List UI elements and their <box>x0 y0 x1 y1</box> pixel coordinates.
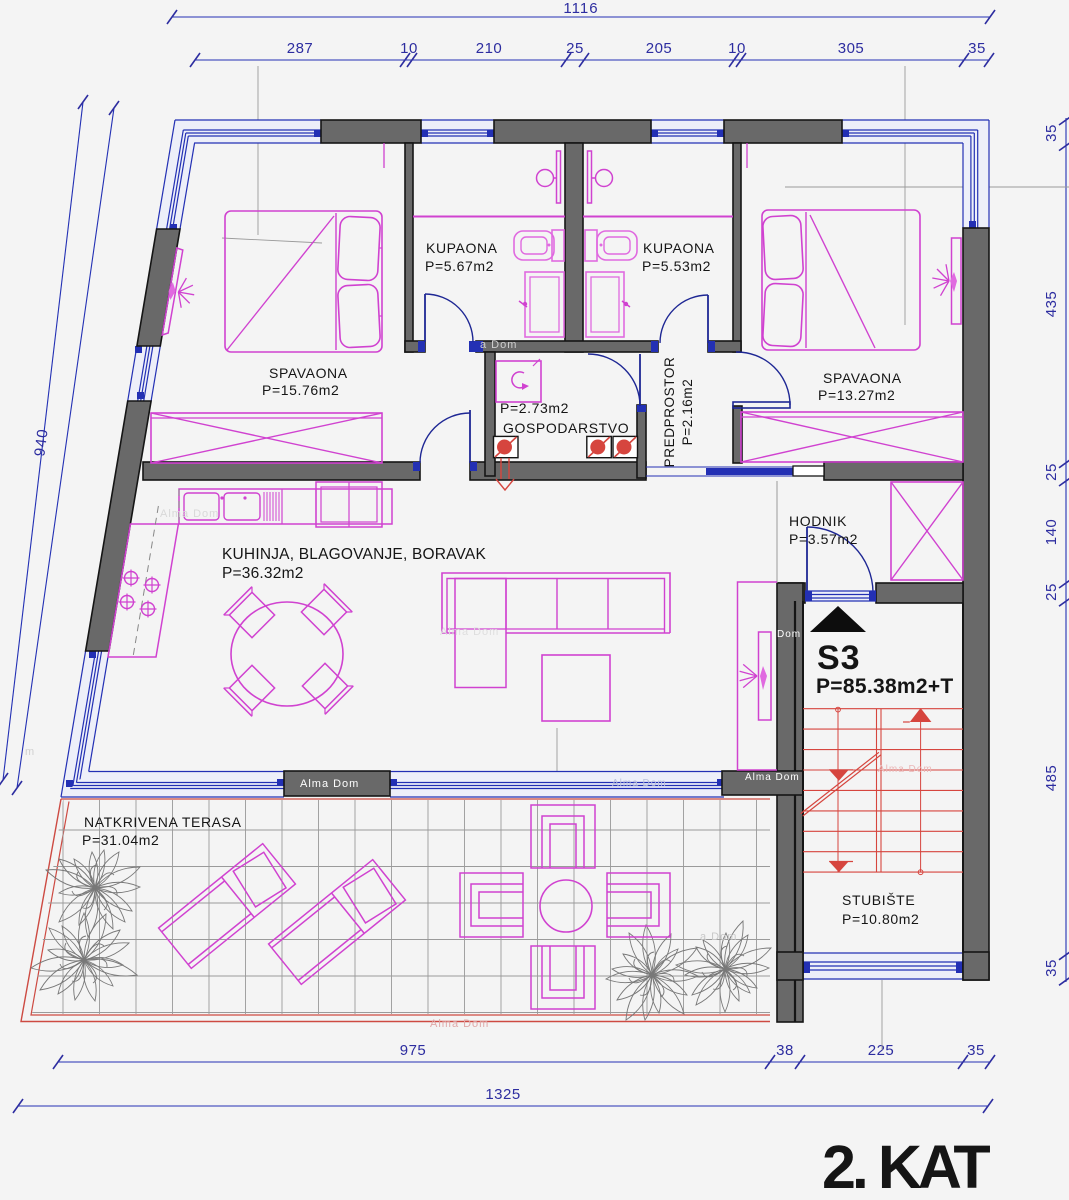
svg-text:KUPAONA: KUPAONA <box>426 240 498 256</box>
svg-text:975: 975 <box>400 1042 427 1059</box>
svg-text:KUHINJA, BLAGOVANJE, BORAVAK: KUHINJA, BLAGOVANJE, BORAVAK <box>222 546 486 563</box>
svg-text:P=31.04m2: P=31.04m2 <box>82 832 159 848</box>
svg-text:STUBIŠTE: STUBIŠTE <box>842 892 915 908</box>
svg-text:P=36.32m2: P=36.32m2 <box>222 565 304 582</box>
svg-text:140: 140 <box>1043 519 1060 546</box>
svg-text:HODNIK: HODNIK <box>789 513 847 529</box>
svg-text:205: 205 <box>646 40 673 57</box>
svg-text:P=2.16m2: P=2.16m2 <box>680 379 695 446</box>
svg-text:a Dom: a Dom <box>480 339 517 351</box>
svg-text:35: 35 <box>1043 124 1060 142</box>
svg-text:P=13.27m2: P=13.27m2 <box>818 387 895 403</box>
svg-text:Alma Dom: Alma Dom <box>430 1018 489 1030</box>
svg-text:Alma Dom: Alma Dom <box>612 778 667 789</box>
svg-text:485: 485 <box>1043 765 1060 792</box>
svg-text:35: 35 <box>967 1042 985 1059</box>
svg-text:P=5.53m2: P=5.53m2 <box>642 258 711 274</box>
svg-text:P=3.57m2: P=3.57m2 <box>789 531 858 547</box>
svg-text:25: 25 <box>1043 583 1060 601</box>
svg-text:S3: S3 <box>817 639 861 677</box>
svg-text:Alma Dom: Alma Dom <box>878 764 933 775</box>
svg-text:25: 25 <box>566 40 584 57</box>
svg-text:PREDPROSTOR: PREDPROSTOR <box>662 357 677 468</box>
svg-text:P=2.73m2: P=2.73m2 <box>500 400 569 416</box>
svg-text:a Dom: a Dom <box>700 931 737 943</box>
svg-text:NATKRIVENA TERASA: NATKRIVENA TERASA <box>84 814 242 830</box>
svg-text:P=5.67m2: P=5.67m2 <box>425 258 494 274</box>
svg-text:2. KAT: 2. KAT <box>822 1133 990 1200</box>
svg-text:SPAVAONA: SPAVAONA <box>269 365 348 381</box>
svg-text:m: m <box>25 746 35 758</box>
svg-text:Alma Dom: Alma Dom <box>440 626 499 638</box>
svg-text:35: 35 <box>968 40 986 57</box>
svg-text:P=10.80m2: P=10.80m2 <box>842 911 919 927</box>
svg-text:Dom: Dom <box>777 629 801 640</box>
svg-text:940: 940 <box>31 428 51 458</box>
svg-text:P=85.38m2+T: P=85.38m2+T <box>816 675 954 698</box>
svg-text:10: 10 <box>728 40 746 57</box>
svg-text:GOSPODARSTVO: GOSPODARSTVO <box>503 420 629 436</box>
svg-text:Alma Dom: Alma Dom <box>160 508 219 520</box>
svg-text:435: 435 <box>1043 291 1060 318</box>
svg-text:KUPAONA: KUPAONA <box>643 240 715 256</box>
svg-text:P=15.76m2: P=15.76m2 <box>262 382 339 398</box>
svg-text:SPAVAONA: SPAVAONA <box>823 370 902 386</box>
svg-text:1325: 1325 <box>485 1086 520 1103</box>
svg-text:287: 287 <box>287 40 314 57</box>
svg-text:1116: 1116 <box>563 0 598 17</box>
svg-text:225: 225 <box>868 1042 895 1059</box>
svg-text:35: 35 <box>1043 959 1060 977</box>
svg-text:Alma Dom: Alma Dom <box>300 778 359 790</box>
svg-text:10: 10 <box>400 40 418 57</box>
svg-text:25: 25 <box>1043 463 1060 481</box>
svg-text:210: 210 <box>476 40 503 57</box>
svg-text:38: 38 <box>776 1042 794 1059</box>
svg-text:305: 305 <box>838 40 865 57</box>
svg-text:Alma Dom: Alma Dom <box>745 772 800 783</box>
